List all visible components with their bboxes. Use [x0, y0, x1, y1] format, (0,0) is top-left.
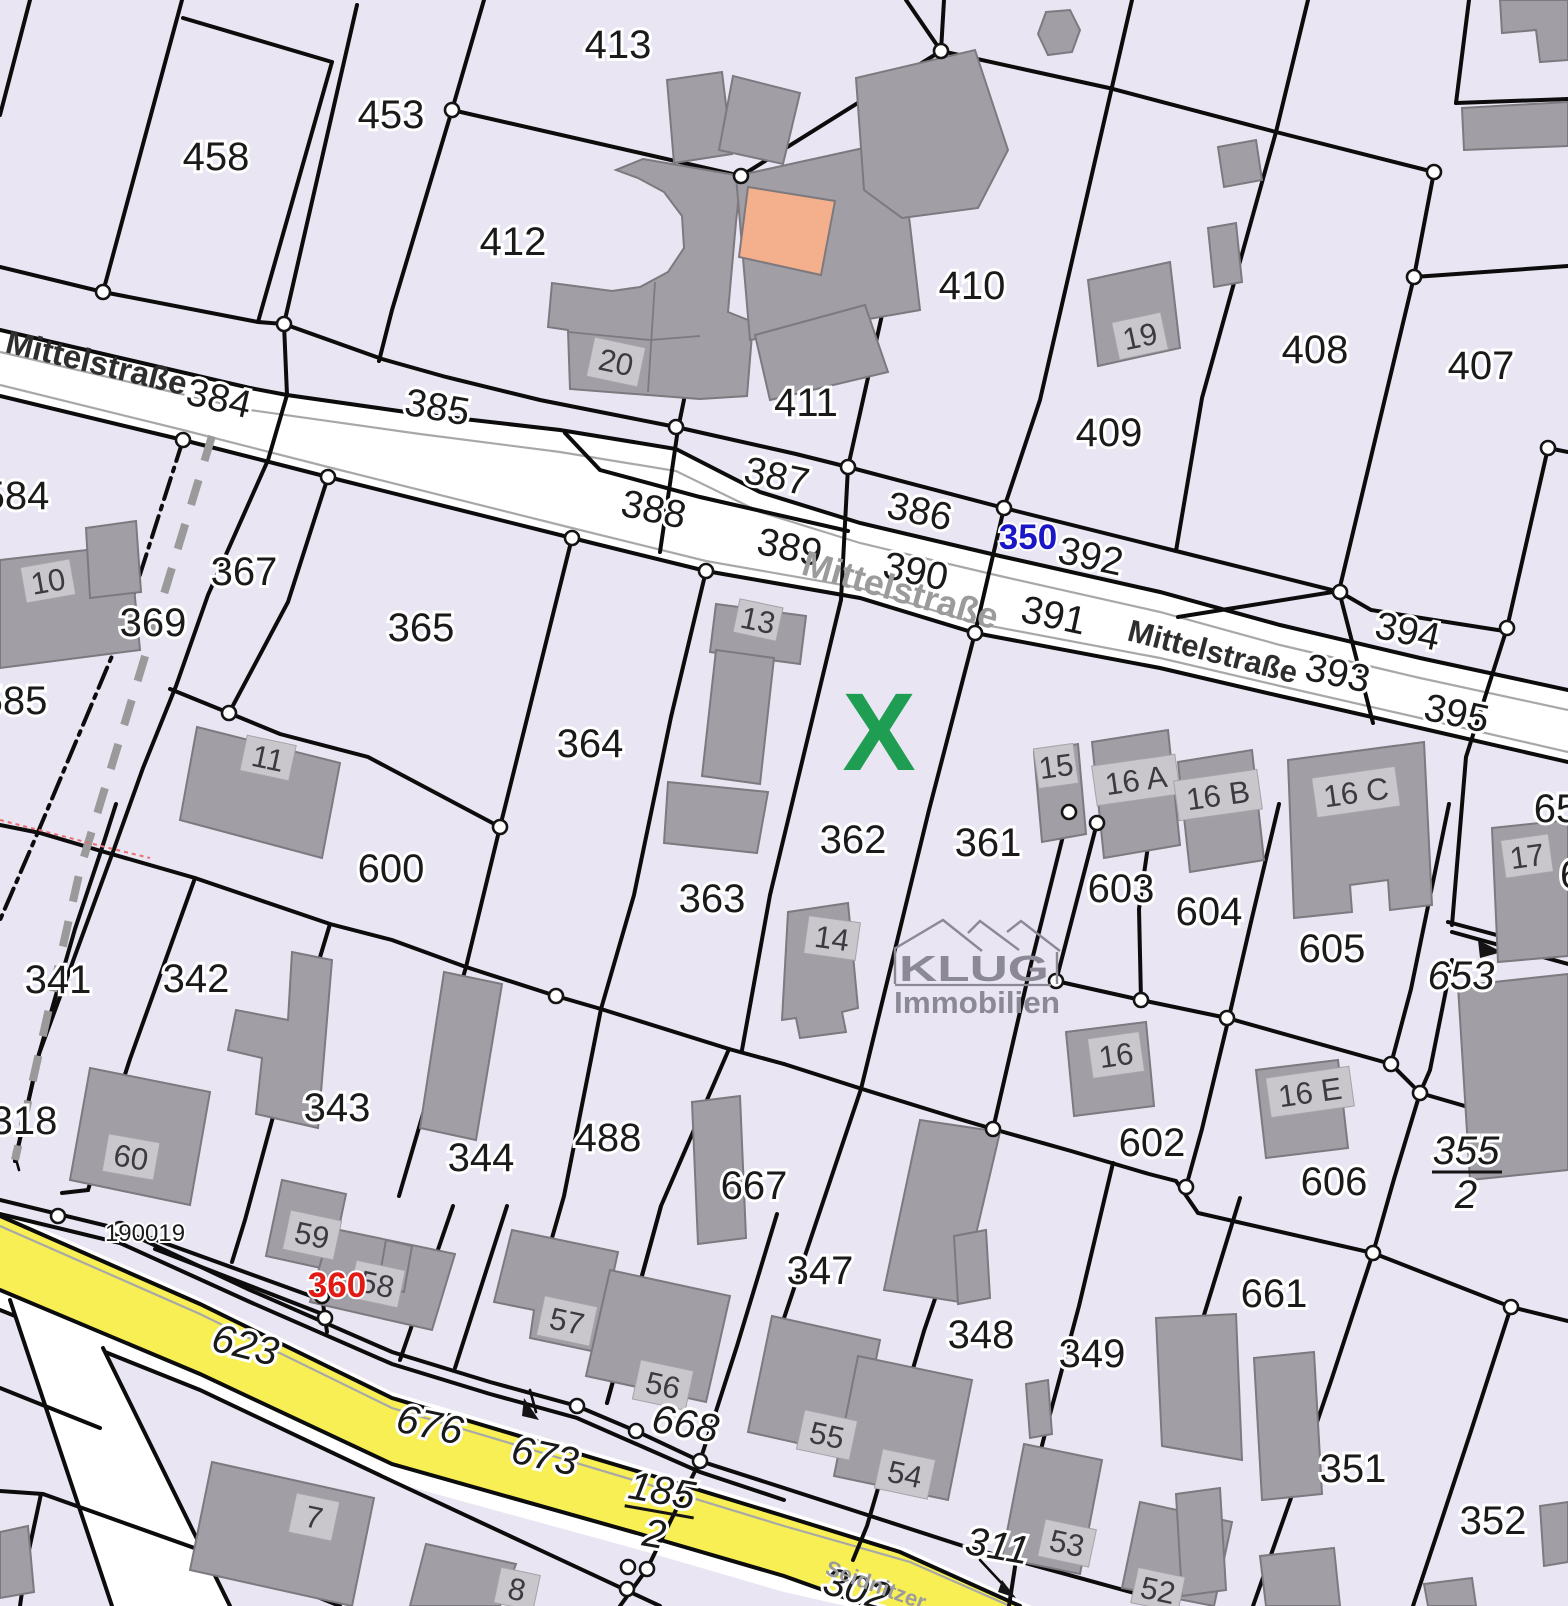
- svg-text:350: 350: [999, 518, 1057, 557]
- svg-text:362: 362: [820, 818, 887, 862]
- svg-text:412: 412: [480, 220, 547, 264]
- svg-text:351: 351: [1320, 1447, 1387, 1491]
- svg-text:Immobilien: Immobilien: [894, 985, 1060, 1020]
- svg-text:54: 54: [884, 1454, 925, 1495]
- svg-text:16: 16: [1097, 1036, 1136, 1075]
- svg-text:364: 364: [557, 722, 624, 766]
- svg-text:667: 667: [721, 1164, 788, 1208]
- svg-text:363: 363: [679, 877, 746, 921]
- svg-text:458: 458: [183, 135, 250, 179]
- svg-text:14: 14: [812, 919, 851, 958]
- svg-text:605: 605: [1299, 927, 1366, 971]
- svg-text:65: 65: [1534, 787, 1568, 831]
- svg-text:13: 13: [737, 600, 778, 641]
- svg-text:606: 606: [1301, 1160, 1368, 1204]
- svg-text:361: 361: [955, 821, 1022, 865]
- svg-text:17: 17: [1508, 837, 1547, 876]
- svg-text:408: 408: [1282, 328, 1349, 372]
- svg-text:53: 53: [1046, 1523, 1087, 1564]
- svg-text:343: 343: [304, 1086, 371, 1130]
- svg-text:348: 348: [948, 1313, 1015, 1357]
- svg-text:352: 352: [1460, 1499, 1527, 1543]
- svg-text:2: 2: [1454, 1173, 1477, 1217]
- svg-text:342: 342: [163, 957, 230, 1001]
- svg-text:409: 409: [1076, 411, 1143, 455]
- svg-text:365: 365: [388, 606, 455, 650]
- svg-text:453: 453: [358, 93, 425, 137]
- svg-text:407: 407: [1448, 344, 1515, 388]
- svg-text:318: 318: [0, 1099, 57, 1143]
- svg-text:585: 585: [0, 679, 47, 723]
- svg-text:584: 584: [0, 474, 49, 518]
- svg-text:488: 488: [575, 1116, 642, 1160]
- svg-text:344: 344: [448, 1136, 515, 1180]
- svg-text:360: 360: [308, 1266, 366, 1305]
- svg-text:410: 410: [939, 264, 1006, 308]
- svg-text:341: 341: [25, 958, 92, 1002]
- svg-text:349: 349: [1059, 1332, 1126, 1376]
- svg-text:20: 20: [595, 342, 636, 383]
- svg-text:653: 653: [1428, 954, 1495, 998]
- svg-text:600: 600: [358, 847, 425, 891]
- svg-text:190019: 190019: [105, 1220, 185, 1247]
- svg-text:347: 347: [787, 1249, 854, 1293]
- svg-text:X: X: [842, 671, 915, 794]
- svg-text:413: 413: [585, 23, 652, 67]
- svg-text:369: 369: [120, 601, 187, 645]
- svg-text:6: 6: [1560, 853, 1568, 897]
- svg-text:355: 355: [1433, 1129, 1500, 1173]
- svg-text:367: 367: [211, 550, 278, 594]
- svg-text:60: 60: [111, 1137, 151, 1177]
- svg-text:19: 19: [1120, 316, 1161, 357]
- svg-text:57: 57: [546, 1301, 587, 1342]
- svg-text:604: 604: [1176, 890, 1243, 934]
- svg-text:59: 59: [291, 1215, 332, 1256]
- svg-text:52: 52: [1137, 1570, 1178, 1606]
- svg-text:10: 10: [28, 561, 68, 601]
- svg-text:55: 55: [806, 1415, 847, 1456]
- svg-text:602: 602: [1119, 1121, 1186, 1165]
- svg-text:661: 661: [1241, 1272, 1308, 1316]
- svg-text:KLUG: KLUG: [899, 948, 1049, 989]
- svg-text:603: 603: [1088, 867, 1155, 911]
- svg-text:15: 15: [1037, 747, 1076, 786]
- svg-text:411: 411: [774, 381, 838, 425]
